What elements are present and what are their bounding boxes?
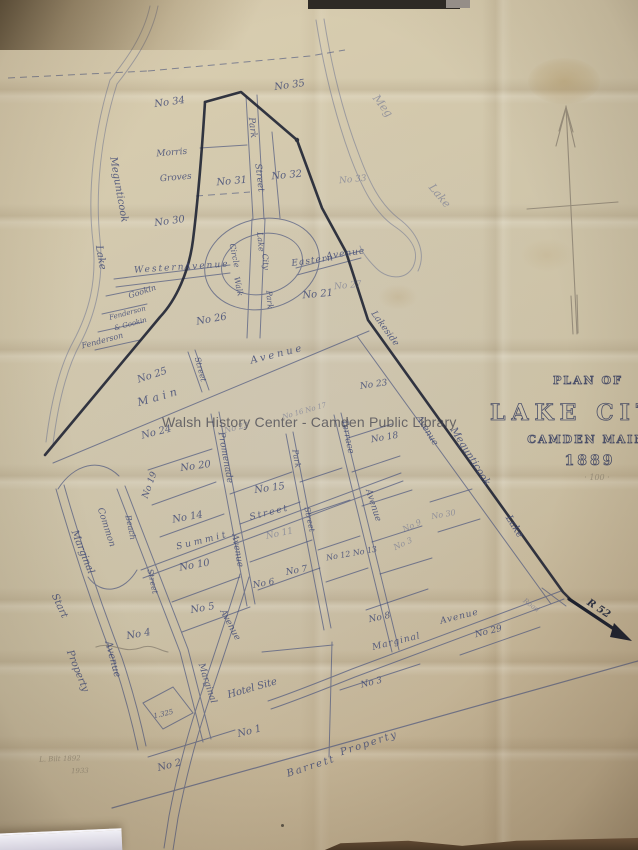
map-label: Street bbox=[252, 163, 265, 193]
paper-speck bbox=[281, 824, 284, 827]
map-label: Morris bbox=[155, 147, 188, 160]
map-label: Street bbox=[193, 356, 208, 383]
map-label: No 10 bbox=[178, 557, 212, 573]
map-label: No 4 bbox=[125, 627, 152, 642]
map-label: No 6 bbox=[251, 577, 276, 591]
map-label: Terrace bbox=[338, 418, 355, 454]
map-label: No 5 bbox=[189, 601, 216, 616]
map-label: No 19 bbox=[140, 470, 159, 501]
map-label: No 35 bbox=[273, 78, 306, 93]
street-lines bbox=[53, 95, 638, 850]
map-label: 1.325 bbox=[153, 708, 175, 721]
map-label: Lake bbox=[93, 244, 108, 271]
map-label: No 24 bbox=[139, 424, 172, 442]
map-label: No 26 bbox=[195, 311, 229, 327]
map-label: Start bbox=[49, 592, 70, 621]
map-label: 1933 bbox=[71, 767, 90, 776]
map-label: Avenue bbox=[102, 639, 123, 679]
map-label: No 23 bbox=[358, 378, 388, 392]
photo-edge-shadow bbox=[0, 0, 360, 50]
map-label: Groves bbox=[159, 172, 192, 185]
map-label: Meg bbox=[369, 91, 395, 119]
map-label: No 34 bbox=[153, 95, 186, 110]
map-label: No 31 bbox=[215, 175, 248, 189]
map-label: No 7 bbox=[284, 564, 309, 578]
map-label: Common bbox=[95, 507, 117, 549]
map-label: · 100 · bbox=[584, 473, 609, 482]
map-label: No 20 bbox=[179, 459, 213, 474]
map-label: No 18 bbox=[369, 431, 399, 446]
photograph-of-map: No 34No 35MegLakeMorrisGrovesParkStreetN… bbox=[0, 0, 638, 850]
map-label: 1889 bbox=[565, 453, 616, 469]
map-label: Avenue bbox=[248, 343, 305, 367]
map-label: Park bbox=[246, 116, 259, 139]
map-label: No 32 bbox=[270, 169, 303, 183]
map-label: No 30 bbox=[430, 508, 457, 521]
map-label: PLAN OF bbox=[553, 374, 623, 387]
map-drawing: No 34No 35MegLakeMorrisGrovesParkStreetN… bbox=[0, 0, 638, 850]
map-label: Promenade bbox=[215, 430, 234, 484]
map-label: Megunticook bbox=[447, 425, 492, 488]
lake-shoreline bbox=[46, 6, 421, 444]
map-label: Avenue bbox=[183, 259, 230, 272]
map-label: No 16 No 17 bbox=[281, 401, 328, 422]
photo-edge-dark-strip bbox=[308, 0, 460, 9]
map-label: No 33 bbox=[338, 174, 368, 186]
map-label: Property bbox=[338, 729, 400, 758]
map-label: Marginal bbox=[370, 631, 421, 653]
map-label: L. Bilt 1892 bbox=[38, 754, 81, 764]
map-label: Lake bbox=[502, 512, 525, 540]
photo-edge-gray-patch bbox=[446, 0, 470, 8]
map-label: Property bbox=[64, 648, 91, 694]
map-label: Beach bbox=[123, 513, 137, 540]
map-label: Park bbox=[264, 289, 275, 309]
map-label: No 3 bbox=[391, 536, 413, 553]
map-label: No 30 bbox=[153, 214, 187, 229]
map-label: No 29 bbox=[473, 624, 503, 641]
map-label: No 15 bbox=[253, 481, 286, 496]
map-label: Fenderson bbox=[80, 331, 125, 351]
map-label: Western bbox=[134, 262, 186, 276]
map-label: Avenue bbox=[324, 246, 365, 262]
map-label: No 1 bbox=[235, 723, 262, 740]
map-label: Megunticook bbox=[107, 155, 130, 223]
map-label: No 8 bbox=[367, 611, 392, 626]
north-arrow bbox=[527, 106, 618, 334]
map-label: Walk bbox=[232, 276, 245, 297]
map-label: No 3 bbox=[359, 675, 384, 690]
map-label: Lake bbox=[255, 231, 266, 253]
map-label: Main bbox=[135, 384, 182, 409]
map-label: No 11 bbox=[264, 526, 294, 542]
map-label: No 9 bbox=[400, 518, 422, 535]
map-label: No 21 bbox=[301, 288, 334, 302]
map-label: Hotel Site bbox=[225, 676, 278, 701]
map-label: Marginal bbox=[68, 528, 96, 576]
map-label: Avenue bbox=[413, 413, 440, 448]
map-label: LAKE CITY bbox=[490, 400, 638, 426]
map-label: No 25 bbox=[135, 366, 169, 386]
map-label: Lake bbox=[425, 180, 453, 210]
map-label: City bbox=[260, 253, 270, 271]
map-label: CAMDEN MAINE bbox=[527, 433, 638, 446]
map-label: Street bbox=[249, 503, 291, 522]
